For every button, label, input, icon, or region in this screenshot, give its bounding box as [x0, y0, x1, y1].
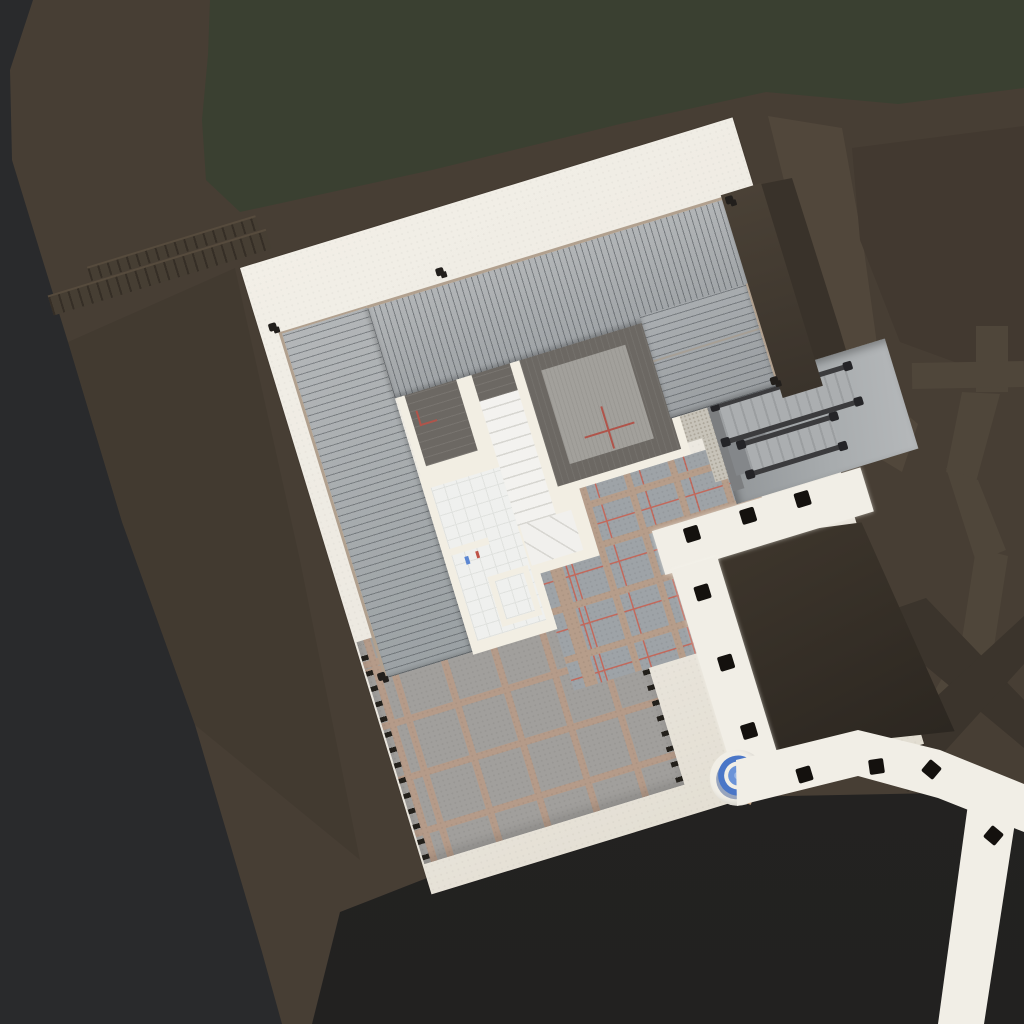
fixture-blue	[464, 556, 470, 565]
handrail	[749, 443, 844, 476]
path-junction-horizontal	[912, 361, 1024, 389]
fixture-red	[475, 551, 480, 559]
roof-seam	[653, 328, 760, 362]
plan-mark-red	[415, 411, 421, 427]
bathroom-partition	[449, 537, 489, 555]
paver-marker	[868, 758, 885, 775]
site-render-canvas	[0, 0, 1024, 1024]
plan-mark-red	[420, 419, 438, 426]
